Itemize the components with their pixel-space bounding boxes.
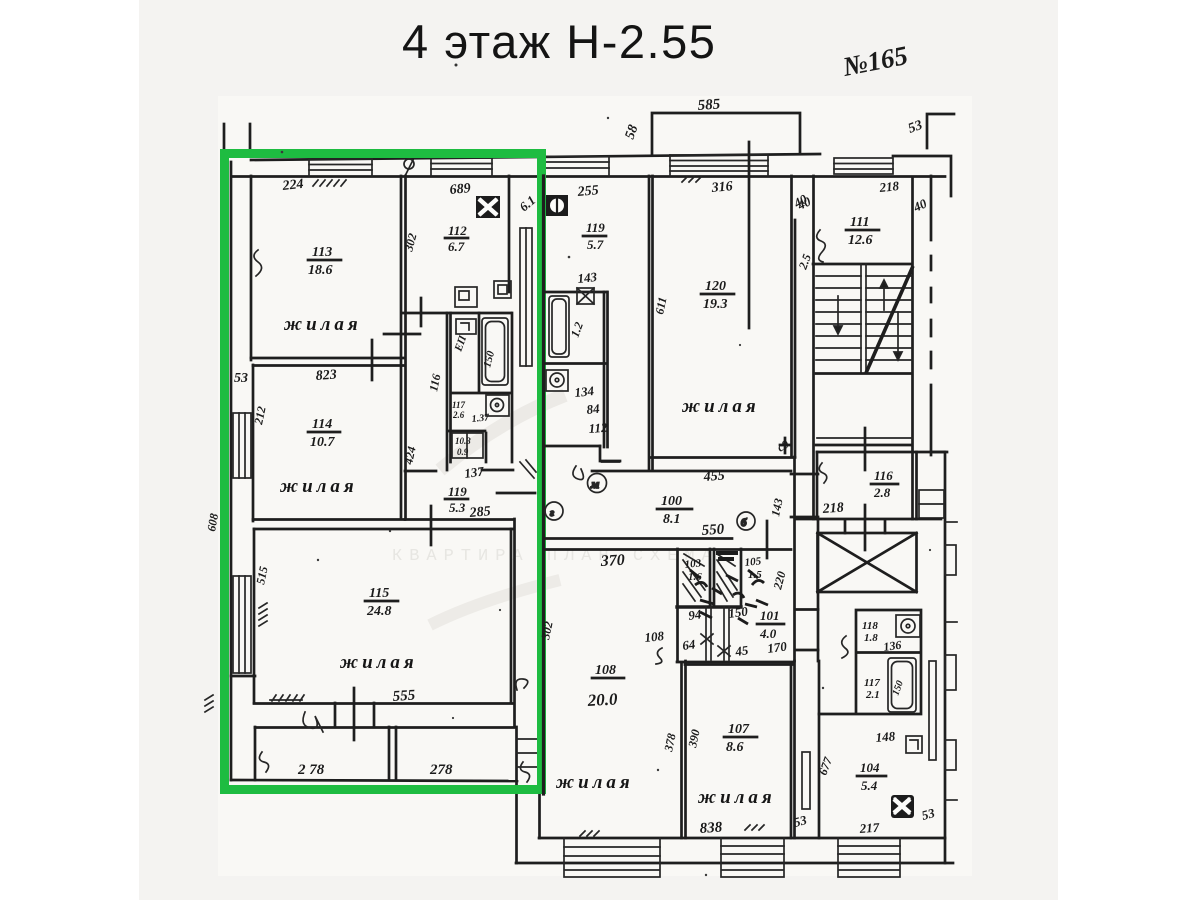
svg-text:53: 53 [234,371,248,386]
svg-text:117: 117 [452,400,466,410]
svg-text:119: 119 [448,484,467,499]
svg-text:101: 101 [760,608,780,623]
svg-text:278: 278 [429,762,453,778]
svg-text:1.6: 1.6 [688,571,702,583]
svg-text:117: 117 [864,677,880,689]
svg-text:114: 114 [312,417,332,432]
svg-text:107: 107 [728,722,750,737]
svg-text:45: 45 [733,642,749,659]
svg-text:2.1: 2.1 [865,689,880,701]
svg-text:838: 838 [699,819,723,837]
svg-text:84: 84 [586,401,601,417]
svg-text:1.8: 1.8 [864,632,878,644]
svg-text:111: 111 [850,215,869,230]
svg-text:2.8: 2.8 [873,485,891,500]
svg-text:10.3: 10.3 [455,436,471,446]
svg-text:136: 136 [882,638,902,654]
svg-text:120: 120 [705,279,726,294]
svg-text:143: 143 [577,269,598,286]
svg-text:5.7: 5.7 [587,237,604,252]
svg-text:555: 555 [392,687,416,705]
svg-text:134: 134 [574,383,595,400]
svg-text:19.3: 19.3 [703,297,728,312]
svg-text:148: 148 [875,728,896,745]
svg-text:4.0: 4.0 [759,626,777,641]
svg-text:113: 113 [312,245,332,260]
svg-text:112: 112 [448,223,467,238]
svg-text:б: б [741,517,747,529]
svg-text:116: 116 [874,468,893,483]
svg-text:4 этаж Н-2.55: 4 этаж Н-2.55 [402,15,716,68]
svg-text:20.0: 20.0 [586,689,618,710]
svg-text:18.6: 18.6 [308,263,333,278]
svg-text:жилая: жилая [555,772,634,793]
svg-text:137: 137 [463,463,485,481]
svg-text:жилая: жилая [279,476,358,497]
svg-text:1.37: 1.37 [471,412,491,425]
svg-text:8.1: 8.1 [663,512,681,527]
svg-text:105: 105 [744,555,762,569]
svg-text:115: 115 [369,586,389,601]
svg-text:м: м [590,477,599,491]
svg-text:550: 550 [701,521,725,539]
svg-text:2 78: 2 78 [297,762,325,778]
svg-text:жилая: жилая [283,314,362,335]
svg-text:жилая: жилая [681,396,760,417]
svg-text:г: г [550,507,554,519]
svg-text:455: 455 [702,469,725,485]
svg-text:жилая: жилая [697,787,776,808]
svg-text:119: 119 [586,220,605,235]
svg-text:370: 370 [599,552,625,570]
svg-text:5.4: 5.4 [861,778,878,793]
svg-text:585: 585 [697,96,721,114]
svg-text:64: 64 [681,636,696,653]
svg-text:2.6: 2.6 [452,410,465,420]
svg-text:118: 118 [862,620,878,632]
svg-text:94: 94 [687,606,702,623]
svg-text:1.5: 1.5 [748,569,762,581]
svg-text:104: 104 [860,760,880,775]
svg-text:218: 218 [821,501,844,517]
svg-text:170: 170 [766,638,788,656]
svg-text:6.7: 6.7 [448,239,465,254]
svg-text:108: 108 [595,663,616,678]
svg-text:150: 150 [727,603,749,621]
svg-text:224: 224 [281,177,304,194]
svg-text:217: 217 [858,820,880,836]
svg-text:108: 108 [644,628,665,645]
svg-text:823: 823 [315,368,337,384]
svg-text:255: 255 [576,183,599,200]
svg-text:8.6: 8.6 [726,740,744,755]
svg-text:жилая: жилая [339,652,418,673]
svg-text:112: 112 [588,420,608,436]
svg-text:5.3: 5.3 [449,500,466,515]
svg-text:218: 218 [878,178,900,195]
svg-text:10.7: 10.7 [310,435,336,450]
svg-text:12.6: 12.6 [848,233,873,248]
svg-text:100: 100 [661,494,682,509]
svg-text:316: 316 [710,179,733,196]
svg-text:24.8: 24.8 [366,604,392,619]
svg-text:689: 689 [449,181,471,198]
svg-text:103: 103 [684,557,702,571]
svg-text:285: 285 [468,504,491,521]
svg-text:0.9: 0.9 [457,447,469,457]
